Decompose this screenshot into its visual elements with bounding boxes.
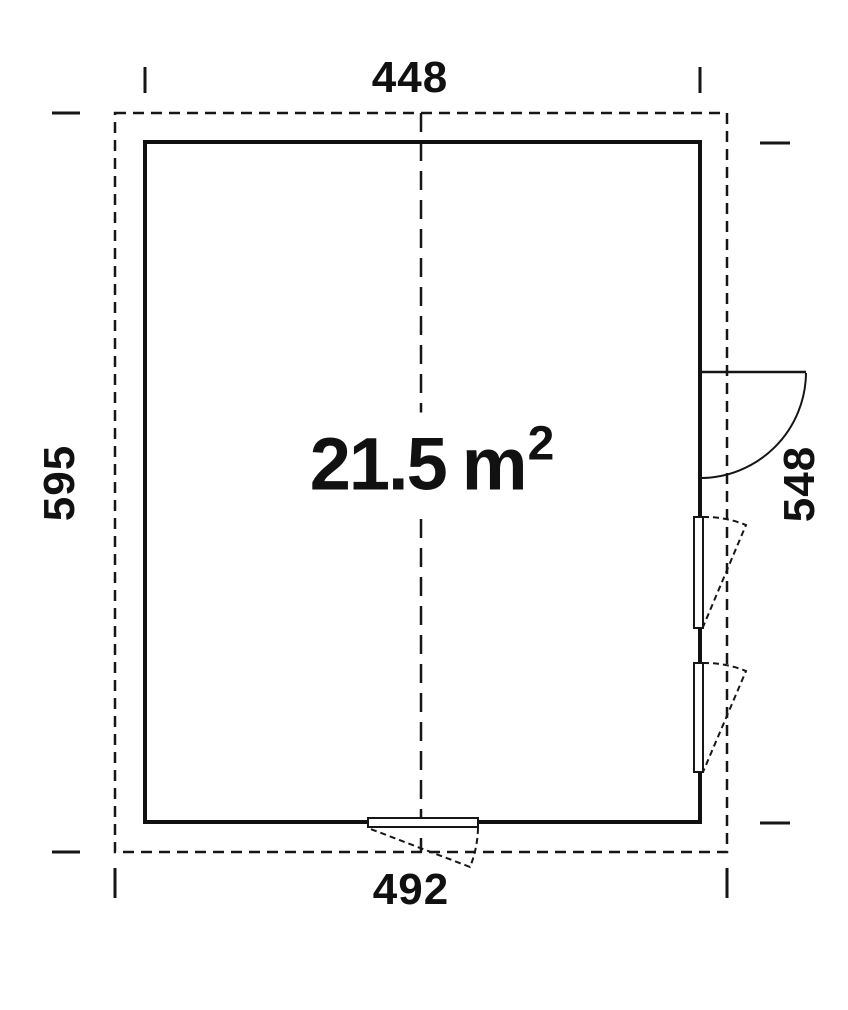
dimension-label-top: 448 (372, 56, 448, 100)
window-right-lower (694, 663, 703, 772)
area-label: 21.5m2 (296, 413, 569, 510)
dimension-label-bottom: 492 (373, 868, 449, 912)
window-bottom-swing (368, 828, 478, 867)
window-bottom (368, 818, 478, 827)
floor-plan-canvas: 448 492 595 548 21.5m2 (0, 0, 848, 1010)
area-unit: m (462, 423, 528, 506)
dimension-label-left: 595 (38, 445, 82, 521)
window-right-upper (694, 517, 703, 628)
window-right-upper-swing (703, 517, 746, 627)
window-right-lower-swing (703, 663, 746, 772)
dimension-label-right: 548 (778, 446, 822, 522)
area-value: 21.5 (310, 423, 446, 506)
area-exponent: 2 (528, 418, 555, 471)
